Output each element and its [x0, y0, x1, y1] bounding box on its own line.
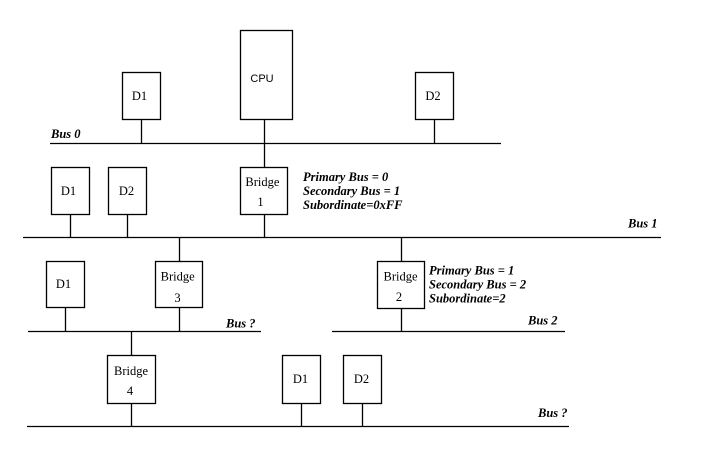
svg-text:2: 2 [396, 290, 402, 304]
svg-text:Bus 1: Bus 1 [627, 217, 658, 231]
svg-text:D1: D1 [132, 89, 147, 103]
svg-text:Secondary Bus = 1: Secondary Bus = 1 [303, 184, 400, 198]
svg-text:4: 4 [127, 384, 134, 398]
svg-text:Bus 2: Bus 2 [527, 314, 558, 328]
svg-text:Primary Bus = 0: Primary Bus = 0 [303, 170, 389, 184]
svg-text:D2: D2 [119, 184, 134, 198]
svg-text:Subordinate=2: Subordinate=2 [429, 292, 506, 306]
svg-text:Bridge: Bridge [245, 175, 279, 189]
svg-text:D1: D1 [293, 372, 308, 386]
svg-text:Bus ?: Bus ? [537, 406, 568, 420]
svg-text:D2: D2 [354, 372, 369, 386]
svg-text:Bridge: Bridge [161, 270, 195, 284]
svg-text:D1: D1 [56, 277, 71, 291]
svg-text:Secondary Bus = 2: Secondary Bus = 2 [429, 278, 526, 292]
svg-text:Bridge: Bridge [383, 270, 417, 284]
svg-text:3: 3 [174, 291, 180, 305]
svg-text:D1: D1 [61, 184, 76, 198]
svg-text:Bus ?: Bus ? [225, 317, 256, 331]
svg-text:1: 1 [257, 195, 263, 209]
svg-text:Primary Bus = 1: Primary Bus = 1 [429, 264, 514, 278]
svg-text:D2: D2 [425, 89, 440, 103]
svg-text:Bridge: Bridge [114, 364, 148, 378]
svg-text:Bus 0: Bus 0 [50, 127, 81, 141]
svg-text:Subordinate=0xFF: Subordinate=0xFF [303, 198, 403, 212]
svg-text:CPU: CPU [250, 73, 273, 85]
